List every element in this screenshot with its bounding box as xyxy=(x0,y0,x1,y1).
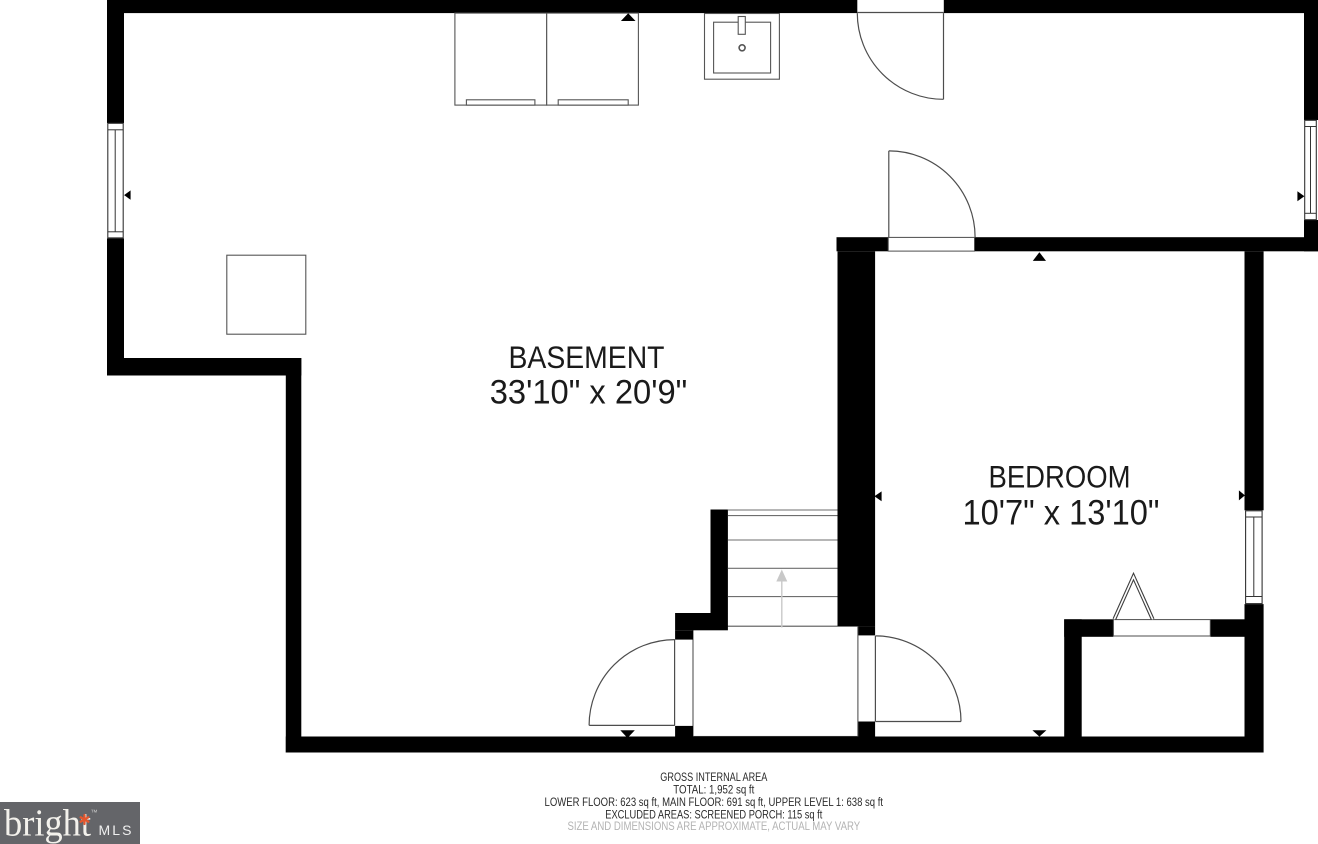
svg-text:SIZE AND DIMENSIONS ARE APPROX: SIZE AND DIMENSIONS ARE APPROXIMATE, ACT… xyxy=(567,819,860,833)
svg-text:bright: bright xyxy=(4,803,91,844)
svg-text:BEDROOM: BEDROOM xyxy=(989,459,1131,495)
svg-text:™: ™ xyxy=(91,810,98,817)
svg-text:33'10" x 20'9": 33'10" x 20'9" xyxy=(490,373,688,411)
svg-text:MLS: MLS xyxy=(99,822,132,838)
svg-text:10'7" x 13'10": 10'7" x 13'10" xyxy=(963,493,1160,532)
svg-text:BASEMENT: BASEMENT xyxy=(509,340,665,375)
